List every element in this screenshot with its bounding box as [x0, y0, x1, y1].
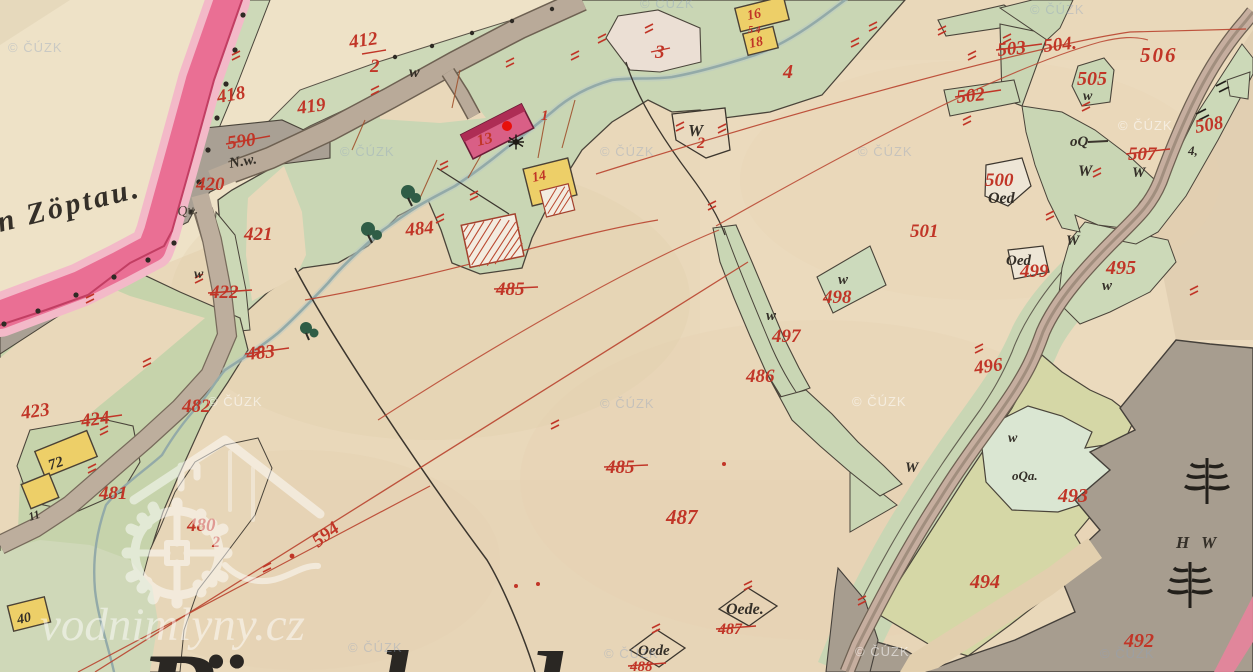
svg-text:Qu.: Qu. [176, 202, 199, 220]
svg-text:© ČÚZK: © ČÚZK [1100, 646, 1155, 661]
svg-text:W: W [1132, 165, 1147, 181]
svg-text:© ČÚZK: © ČÚZK [640, 0, 695, 11]
svg-text:412: 412 [347, 28, 380, 53]
svg-text:498: 498 [822, 287, 852, 308]
svg-text:2: 2 [369, 56, 380, 77]
svg-text:w: w [838, 272, 849, 288]
svg-text:494: 494 [969, 571, 1000, 593]
svg-text:487: 487 [717, 621, 743, 638]
svg-text:© ČÚZK: © ČÚZK [208, 394, 263, 409]
svg-text:486: 486 [745, 366, 775, 387]
svg-text:w: w [1083, 89, 1093, 104]
svg-text:Oede.: Oede. [726, 601, 764, 618]
svg-text:© ČÚZK: © ČÚZK [604, 646, 659, 661]
svg-text:485: 485 [495, 279, 525, 300]
svg-text:481: 481 [98, 483, 128, 504]
svg-text:© ČÚZK: © ČÚZK [600, 144, 655, 159]
svg-text:497: 497 [771, 326, 802, 347]
svg-text:423: 423 [19, 399, 51, 424]
svg-text:oQ: oQ [1070, 134, 1089, 150]
svg-text:W: W [905, 460, 920, 476]
svg-text:w: w [1008, 431, 1018, 446]
svg-text:© ČÚZK: © ČÚZK [348, 640, 403, 655]
svg-text:© ČÚZK: © ČÚZK [855, 644, 910, 659]
svg-text:500: 500 [985, 170, 1014, 191]
svg-text:485: 485 [605, 457, 635, 478]
svg-text:495: 495 [1105, 257, 1136, 279]
svg-text:504.: 504. [1042, 33, 1077, 57]
svg-text:482: 482 [181, 396, 211, 417]
svg-text:Oed: Oed [1006, 253, 1031, 269]
svg-text:w: w [766, 308, 777, 324]
svg-text:487: 487 [665, 505, 699, 529]
svg-text:w: w [409, 64, 420, 81]
svg-text:501: 501 [910, 221, 939, 242]
svg-text:1: 1 [541, 108, 549, 124]
svg-text:H W: H W [1175, 533, 1220, 552]
svg-text:3: 3 [654, 42, 665, 63]
svg-text:© ČÚZK: © ČÚZK [1118, 118, 1173, 133]
svg-text:424: 424 [79, 407, 111, 432]
svg-text:oQa.: oQa. [1012, 468, 1038, 483]
svg-text:w: w [1102, 278, 1113, 294]
svg-text:w: w [194, 267, 204, 282]
svg-text:505: 505 [1077, 68, 1107, 90]
svg-text:506: 506 [1140, 43, 1178, 67]
svg-text:© ČÚZK: © ČÚZK [340, 144, 395, 159]
svg-text:© ČÚZK: © ČÚZK [8, 40, 63, 55]
svg-text:496: 496 [972, 354, 1005, 379]
svg-text:W: W [688, 121, 705, 140]
svg-text:420: 420 [195, 174, 225, 195]
svg-text:© ČÚZK: © ČÚZK [600, 396, 655, 411]
svg-text:W: W [1078, 163, 1094, 180]
svg-text:© ČÚZK: © ČÚZK [852, 394, 907, 409]
svg-text:© ČÚZK: © ČÚZK [1030, 2, 1085, 17]
svg-text:507: 507 [1128, 144, 1158, 165]
svg-text:© ČÚZK: © ČÚZK [858, 144, 913, 159]
svg-text:40: 40 [15, 610, 33, 628]
svg-text:W: W [1066, 233, 1081, 249]
svg-text:d: d [502, 627, 564, 672]
svg-text:419: 419 [295, 94, 328, 119]
svg-text:Oed: Oed [988, 190, 1016, 207]
svg-text:493: 493 [1057, 485, 1088, 507]
svg-text:4,: 4, [1187, 143, 1198, 158]
svg-text:4: 4 [782, 61, 793, 83]
svg-text:vodnimlyny.cz: vodnimlyny.cz [40, 599, 305, 651]
svg-text:421: 421 [243, 224, 273, 245]
svg-text:5 4: 5 4 [748, 25, 761, 36]
svg-text:484: 484 [403, 217, 435, 241]
